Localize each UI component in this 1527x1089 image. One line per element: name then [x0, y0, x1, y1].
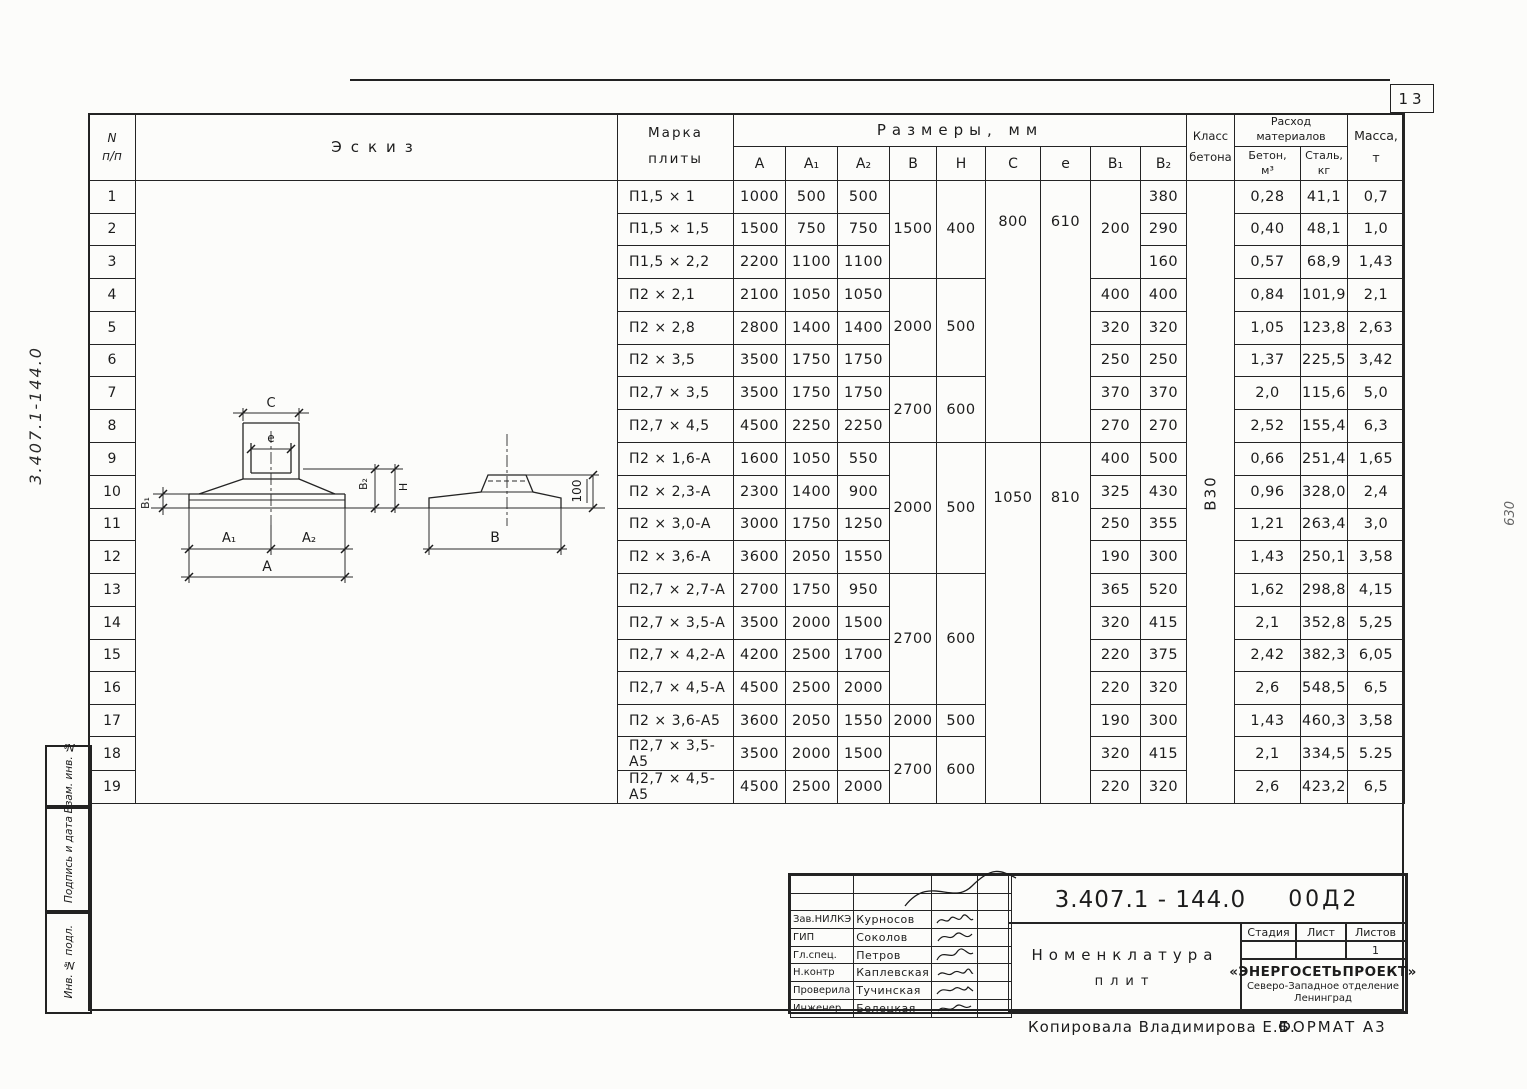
marka-cell: П2,7 × 2,7-А — [618, 573, 734, 606]
listov-value: 1 — [1345, 940, 1406, 960]
row-number-cell: 1 — [89, 181, 136, 214]
sign-name: Белецкая — [854, 999, 932, 1017]
table-cell: 1,65 — [1348, 442, 1405, 475]
table-cell: 500 — [838, 181, 890, 214]
table-cell: 382,3 — [1301, 639, 1348, 672]
sign-name: Петров — [854, 946, 932, 964]
signature-cell — [932, 911, 978, 929]
signature-flourish — [900, 866, 1020, 911]
table-cell: 430 — [1141, 476, 1187, 509]
doc-number-band: 3.407.1 - 144.0 00Д2 — [1008, 875, 1406, 924]
table-cell: 220 — [1091, 639, 1141, 672]
table-cell: 2100 — [734, 278, 786, 311]
table-cell: 500 — [937, 442, 986, 573]
sign-role: Гл.спец. — [791, 946, 854, 964]
class-concrete-value: В30 — [1201, 475, 1219, 510]
header-rashod: Расход материалов — [1235, 114, 1348, 147]
table-cell: 334,5 — [1301, 737, 1348, 771]
signature-squiggle — [935, 913, 975, 927]
table-cell: 415 — [1141, 607, 1187, 640]
table-cell: 1050 — [786, 442, 838, 475]
table-cell: 320 — [1141, 771, 1187, 804]
marka-cell: П2,7 × 3,5-А — [618, 607, 734, 640]
table-cell: 2050 — [786, 541, 838, 574]
table-cell: 1750 — [786, 377, 838, 410]
header-razmery: Размеры, мм — [734, 114, 1187, 147]
org-city: Ленинград — [1294, 993, 1352, 1006]
table-cell: 3500 — [734, 607, 786, 640]
signature-row: Проверила Тучинская — [791, 982, 1012, 1000]
row-number-cell: 3 — [89, 246, 136, 279]
table-cell: 3600 — [734, 704, 786, 737]
signature-row: ГИП Соколов — [791, 929, 1012, 947]
table-cell: 190 — [1091, 541, 1141, 574]
table-cell: 1700 — [838, 639, 890, 672]
table-cell: 500 — [937, 704, 986, 737]
table-cell: 320 — [1091, 737, 1141, 771]
table-cell: 2,6 — [1235, 771, 1301, 804]
table-cell: 2000 — [786, 737, 838, 771]
header-dim-b1: В₁ — [1091, 147, 1141, 181]
table-cell: 1750 — [838, 344, 890, 377]
sign-role: Н.контр — [791, 964, 854, 982]
table-cell: 4500 — [734, 771, 786, 804]
row-number-cell: 6 — [89, 344, 136, 377]
table-cell: 0,57 — [1235, 246, 1301, 279]
table-cell: 220 — [1091, 672, 1141, 705]
table-cell: 1550 — [838, 541, 890, 574]
doc-suffix: 00Д2 — [1288, 887, 1359, 912]
table-cell: 0,96 — [1235, 476, 1301, 509]
header-dim-a2: А₂ — [838, 147, 890, 181]
table-cell: 2500 — [786, 639, 838, 672]
signature-squiggle — [935, 1001, 975, 1015]
table-cell: 1050 — [838, 278, 890, 311]
table-cell: 370 — [1091, 377, 1141, 410]
signature-squiggle — [935, 930, 975, 944]
signature-row: Н.контр Каплевская — [791, 964, 1012, 982]
top-rule — [350, 79, 1390, 81]
header-num: N п/п — [89, 114, 136, 181]
table-cell: 600 — [937, 737, 986, 804]
table-cell: 950 — [838, 573, 890, 606]
table-cell: 123,8 — [1301, 311, 1348, 344]
table-cell: 2000 — [890, 704, 937, 737]
table-cell: 250 — [1091, 508, 1141, 541]
table-cell: 610 — [1041, 181, 1091, 443]
table-cell: 2,4 — [1348, 476, 1405, 509]
table-cell: 250,1 — [1301, 541, 1348, 574]
list-value — [1295, 940, 1347, 960]
table-cell: 3,58 — [1348, 541, 1405, 574]
marka-cell: П1,5 × 1,5 — [618, 213, 734, 246]
table-cell: 1500 — [890, 181, 937, 279]
table-cell: 5.25 — [1348, 737, 1405, 771]
header-dim-a: А — [734, 147, 786, 181]
table-cell: 2,1 — [1235, 607, 1301, 640]
row-number-cell: 12 — [89, 541, 136, 574]
dim-label-a2: А₂ — [301, 531, 315, 546]
table-cell: 600 — [937, 573, 986, 704]
signature-squiggle — [935, 966, 975, 980]
table-cell: 548,5 — [1301, 672, 1348, 705]
header-dim-b2: В₂ — [1141, 147, 1187, 181]
table-cell: 3500 — [734, 737, 786, 771]
stage-value — [1240, 940, 1297, 960]
sign-role: Зав.НИЛКЭ — [791, 911, 854, 929]
table-cell: 101,9 — [1301, 278, 1348, 311]
sign-name: Курносов — [854, 911, 932, 929]
table-cell: 320 — [1141, 672, 1187, 705]
table-cell: 1,43 — [1348, 246, 1405, 279]
stage-header: Стадия — [1240, 922, 1297, 942]
marka-cell: П2 × 3,6-А5 — [618, 704, 734, 737]
table-row: 1 С е — [89, 181, 1405, 214]
table-cell: 1050 — [986, 442, 1041, 803]
row-number-cell: 13 — [89, 573, 136, 606]
table-cell: 300 — [1141, 704, 1187, 737]
table-cell: 225,5 — [1301, 344, 1348, 377]
table-cell: 0,66 — [1235, 442, 1301, 475]
marka-cell: П2 × 2,8 — [618, 311, 734, 344]
table-cell: 251,4 — [1301, 442, 1348, 475]
table-cell: 1,43 — [1235, 704, 1301, 737]
table-cell: 1,0 — [1348, 213, 1405, 246]
table-cell: 48,1 — [1301, 213, 1348, 246]
dim-label-b1: В₁ — [139, 497, 152, 509]
table-cell: 500 — [1141, 442, 1187, 475]
table-cell: 355 — [1141, 508, 1187, 541]
table-cell: 2700 — [734, 573, 786, 606]
table-cell: 320 — [1091, 607, 1141, 640]
table-cell: 1500 — [838, 737, 890, 771]
header-marka: Марка плиты — [618, 114, 734, 181]
table-cell: 1400 — [838, 311, 890, 344]
signature-cell — [932, 982, 978, 1000]
header-stal: Сталь, кг — [1301, 147, 1348, 181]
table-cell: 160 — [1141, 246, 1187, 279]
table-cell: 115,6 — [1301, 377, 1348, 410]
table-cell: 1250 — [838, 508, 890, 541]
row-number-cell: 5 — [89, 311, 136, 344]
header-klass-betona: Класс бетона — [1187, 114, 1235, 181]
signature-row: Гл.спец. Петров — [791, 946, 1012, 964]
main-table: N п/п Эскиз Марка плиты Размеры, мм Клас… — [88, 113, 1405, 804]
table-cell: 365 — [1091, 573, 1141, 606]
table-cell: 500 — [786, 181, 838, 214]
table-cell: 2000 — [786, 607, 838, 640]
table-cell: 2700 — [890, 737, 937, 804]
table-cell: 2500 — [786, 771, 838, 804]
table-cell: 2,1 — [1348, 278, 1405, 311]
row-number-cell: 17 — [89, 704, 136, 737]
table-cell: 250 — [1091, 344, 1141, 377]
sign-role: Инженер — [791, 999, 854, 1017]
table-cell: 0,28 — [1235, 181, 1301, 214]
table-cell: 2800 — [734, 311, 786, 344]
list-header: Лист — [1295, 922, 1347, 942]
dim-label-100: 100 — [570, 480, 584, 503]
marka-cell: П2 × 3,0-А — [618, 508, 734, 541]
strip-podpis-data: Подпись и дата — [45, 805, 92, 914]
table-cell: 5,25 — [1348, 607, 1405, 640]
table-cell: 750 — [838, 213, 890, 246]
table-cell: 3,58 — [1348, 704, 1405, 737]
marka-cell: П1,5 × 2,2 — [618, 246, 734, 279]
signature-squiggle — [935, 948, 975, 962]
row-number-cell: 14 — [89, 607, 136, 640]
strip-inv-podl: Инв. № подл. — [45, 910, 92, 1014]
table-cell: 250 — [1141, 344, 1187, 377]
table-cell: 520 — [1141, 573, 1187, 606]
dim-label-h: Н — [397, 483, 410, 491]
class-concrete-cell: В30 — [1187, 181, 1235, 804]
table-cell: 400 — [1141, 278, 1187, 311]
table-cell: 2,6 — [1235, 672, 1301, 705]
table-cell: 3500 — [734, 377, 786, 410]
dim-label-c: С — [266, 396, 275, 411]
margin-doc-number: 3.407.1-144.0 — [18, 330, 52, 500]
doc-number: 3.407.1 - 144.0 — [1055, 887, 1247, 913]
marka-cell: П1,5 × 1 — [618, 181, 734, 214]
sign-name: Тучинская — [854, 982, 932, 1000]
table-cell: 2200 — [734, 246, 786, 279]
table-cell: 4500 — [734, 672, 786, 705]
header-dim-a1: А₁ — [786, 147, 838, 181]
table-cell: 2,42 — [1235, 639, 1301, 672]
sign-role: Проверила — [791, 982, 854, 1000]
table-cell: 1000 — [734, 181, 786, 214]
row-number-cell: 18 — [89, 737, 136, 771]
marka-cell: П2 × 2,1 — [618, 278, 734, 311]
table-cell: 2,52 — [1235, 410, 1301, 443]
header-dim-e: е — [1041, 147, 1091, 181]
table-cell: 750 — [786, 213, 838, 246]
table-cell: 2500 — [786, 672, 838, 705]
table-cell: 1100 — [786, 246, 838, 279]
table-cell: 400 — [1091, 278, 1141, 311]
table-cell: 290 — [1141, 213, 1187, 246]
sketch-svg: С е А₁ А₂ А В₁ В₂ Н — [137, 181, 617, 799]
table-cell: 0,40 — [1235, 213, 1301, 246]
table-cell: 3500 — [734, 344, 786, 377]
header-dim-c: С — [986, 147, 1041, 181]
table-cell: 2050 — [786, 704, 838, 737]
table-cell: 2000 — [838, 771, 890, 804]
table-cell: 1500 — [734, 213, 786, 246]
table-cell: 68,9 — [1301, 246, 1348, 279]
table-cell: 1,62 — [1235, 573, 1301, 606]
table-cell: 3600 — [734, 541, 786, 574]
table-cell: 6,5 — [1348, 672, 1405, 705]
table-cell: 3000 — [734, 508, 786, 541]
strip-vzam-inv: Взам. инв. № — [45, 745, 92, 809]
table-cell: 1400 — [786, 311, 838, 344]
listov-header: Листов — [1345, 922, 1406, 942]
row-number-cell: 4 — [89, 278, 136, 311]
table-cell: 2000 — [890, 442, 937, 573]
table-cell: 4500 — [734, 410, 786, 443]
project-title: Номенклатура плит — [1008, 922, 1242, 1012]
page-number: 13 — [1390, 84, 1434, 113]
table-cell: 4200 — [734, 639, 786, 672]
table-cell: 2250 — [786, 410, 838, 443]
table-cell: 200 — [1091, 181, 1141, 279]
table-cell: 1750 — [838, 377, 890, 410]
table-cell: 400 — [1091, 442, 1141, 475]
dim-label-b2: В₂ — [357, 478, 370, 490]
table-cell: 2,63 — [1348, 311, 1405, 344]
table-cell: 190 — [1091, 704, 1141, 737]
table-cell: 1,05 — [1235, 311, 1301, 344]
marka-cell: П2 × 2,3-А — [618, 476, 734, 509]
table-cell: 220 — [1091, 771, 1141, 804]
table-cell: 2000 — [838, 672, 890, 705]
format-note: ФОРМАТ А3 — [1278, 1018, 1387, 1036]
table-cell: 1500 — [838, 607, 890, 640]
table-cell: 2,0 — [1235, 377, 1301, 410]
table-cell: 270 — [1091, 410, 1141, 443]
row-number-cell: 11 — [89, 508, 136, 541]
header-dim-b: В — [890, 147, 937, 181]
table-cell: 0,7 — [1348, 181, 1405, 214]
marka-cell: П2 × 3,6-А — [618, 541, 734, 574]
signature-cell — [932, 964, 978, 982]
dim-label-b: В — [490, 530, 500, 546]
table-cell: 423,2 — [1301, 771, 1348, 804]
table-cell: 1100 — [838, 246, 890, 279]
marka-cell: П2 × 3,5 — [618, 344, 734, 377]
row-number-cell: 16 — [89, 672, 136, 705]
table-cell: 4,15 — [1348, 573, 1405, 606]
sign-name: Соколов — [854, 929, 932, 947]
header-massa: Масса, т — [1348, 114, 1405, 181]
table-cell: 800 — [986, 181, 1041, 443]
marka-cell: П2,7 × 3,5 — [618, 377, 734, 410]
table-cell: 155,4 — [1301, 410, 1348, 443]
table-cell: 300 — [1141, 541, 1187, 574]
row-number-cell: 7 — [89, 377, 136, 410]
table-cell: 1600 — [734, 442, 786, 475]
dim-label-e: е — [267, 431, 274, 445]
signature-cell — [932, 929, 978, 947]
signature-squiggle — [935, 983, 975, 997]
marka-cell: П2,7 × 4,2-А — [618, 639, 734, 672]
table-cell: 1,37 — [1235, 344, 1301, 377]
header-dim-h: Н — [937, 147, 986, 181]
table-cell: 1050 — [786, 278, 838, 311]
sign-name: Каплевская — [854, 964, 932, 982]
table-cell: 1,21 — [1235, 508, 1301, 541]
table-cell: 600 — [937, 377, 986, 443]
dim-label-a1: А₁ — [221, 531, 235, 546]
table-cell: 2700 — [890, 573, 937, 704]
copy-note: Копировала Владимирова Е.Б. — [1028, 1018, 1296, 1036]
row-number-cell: 19 — [89, 771, 136, 804]
table-cell: 2250 — [838, 410, 890, 443]
header-eskiz: Эскиз — [136, 114, 618, 181]
table-cell: 352,8 — [1301, 607, 1348, 640]
table-cell: 2700 — [890, 377, 937, 443]
table-cell: 41,1 — [1301, 181, 1348, 214]
table-cell: 270 — [1141, 410, 1187, 443]
table-cell: 1,43 — [1235, 541, 1301, 574]
row-number-cell: 8 — [89, 410, 136, 443]
table-cell: 370 — [1141, 377, 1187, 410]
table-cell: 460,3 — [1301, 704, 1348, 737]
table-cell: 810 — [1041, 442, 1091, 803]
header-beton: Бетон, м³ — [1235, 147, 1301, 181]
marka-cell: П2,7 × 4,5 — [618, 410, 734, 443]
table-cell: 5,0 — [1348, 377, 1405, 410]
table-cell: 6,5 — [1348, 771, 1405, 804]
margin-note: 630 — [1498, 478, 1522, 548]
signature-row: Зав.НИЛКЭ Курносов — [791, 911, 1012, 929]
signature-cell — [932, 946, 978, 964]
table-cell: 900 — [838, 476, 890, 509]
table-cell: 298,8 — [1301, 573, 1348, 606]
table-cell: 550 — [838, 442, 890, 475]
org-branch: Северо-Западное отделение — [1247, 981, 1399, 994]
eskiz-cell: С е А₁ А₂ А В₁ В₂ Н — [136, 181, 618, 804]
table-cell: 3,0 — [1348, 508, 1405, 541]
table-cell: 328,0 — [1301, 476, 1348, 509]
marka-cell: П2 × 1,6-А — [618, 442, 734, 475]
table-cell: 1550 — [838, 704, 890, 737]
table-cell: 2300 — [734, 476, 786, 509]
table-cell: 320 — [1091, 311, 1141, 344]
sign-role: ГИП — [791, 929, 854, 947]
table-cell: 415 — [1141, 737, 1187, 771]
table-cell: 1750 — [786, 344, 838, 377]
table-cell: 320 — [1141, 311, 1187, 344]
row-number-cell: 2 — [89, 213, 136, 246]
table-cell: 375 — [1141, 639, 1187, 672]
row-number-cell: 10 — [89, 476, 136, 509]
table-cell: 325 — [1091, 476, 1141, 509]
marka-cell: П2,7 × 4,5-А5 — [618, 771, 734, 804]
table-cell: 263,4 — [1301, 508, 1348, 541]
table-cell: 6,05 — [1348, 639, 1405, 672]
table-cell: 3,42 — [1348, 344, 1405, 377]
table-cell: 2,1 — [1235, 737, 1301, 771]
signature-row: Инженер Белецкая — [791, 999, 1012, 1017]
marka-cell: П2,7 × 4,5-А — [618, 672, 734, 705]
row-number-cell: 15 — [89, 639, 136, 672]
table-cell: 500 — [937, 278, 986, 376]
table-cell: 400 — [937, 181, 986, 279]
table-cell: 380 — [1141, 181, 1187, 214]
org-block: «ЭНЕРГОСЕТЬПРОЕКТ» Северо-Западное отдел… — [1240, 958, 1406, 1012]
dim-label-a: А — [262, 559, 272, 575]
signature-cell — [932, 999, 978, 1017]
org-name: «ЭНЕРГОСЕТЬПРОЕКТ» — [1229, 964, 1417, 981]
table-cell: 1400 — [786, 476, 838, 509]
table-cell: 1750 — [786, 573, 838, 606]
table-cell: 2000 — [890, 278, 937, 376]
table-cell: 0,84 — [1235, 278, 1301, 311]
drawing-sheet: 13 3.407.1-144.0 630 Взам. инв. № Подпис… — [0, 0, 1527, 1089]
table-cell: 6,3 — [1348, 410, 1405, 443]
row-number-cell: 9 — [89, 442, 136, 475]
marka-cell: П2,7 × 3,5-А5 — [618, 737, 734, 771]
table-cell: 1750 — [786, 508, 838, 541]
